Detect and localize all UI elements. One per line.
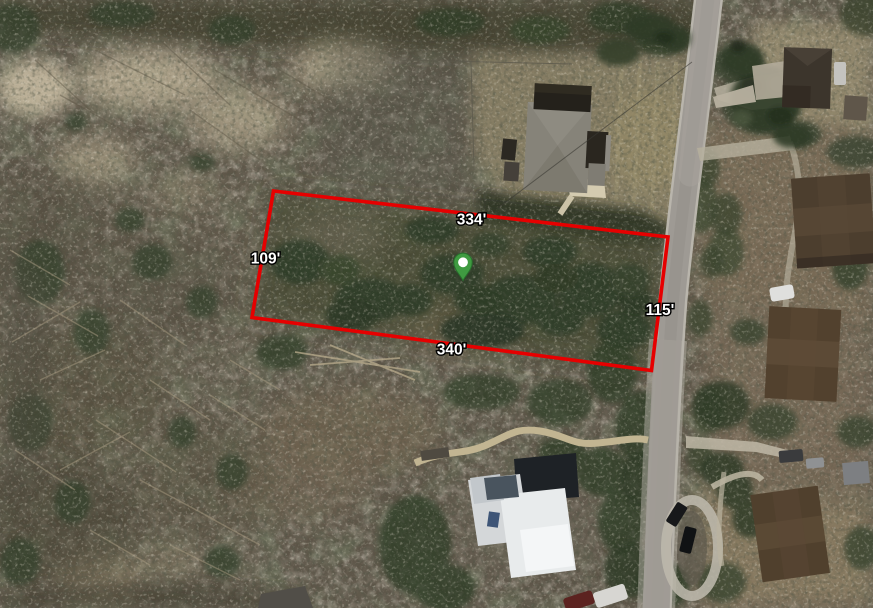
svg-text:109': 109': [251, 251, 281, 268]
svg-text:340': 340': [437, 342, 467, 359]
svg-text:334': 334': [457, 212, 487, 229]
svg-text:115': 115': [646, 302, 675, 319]
